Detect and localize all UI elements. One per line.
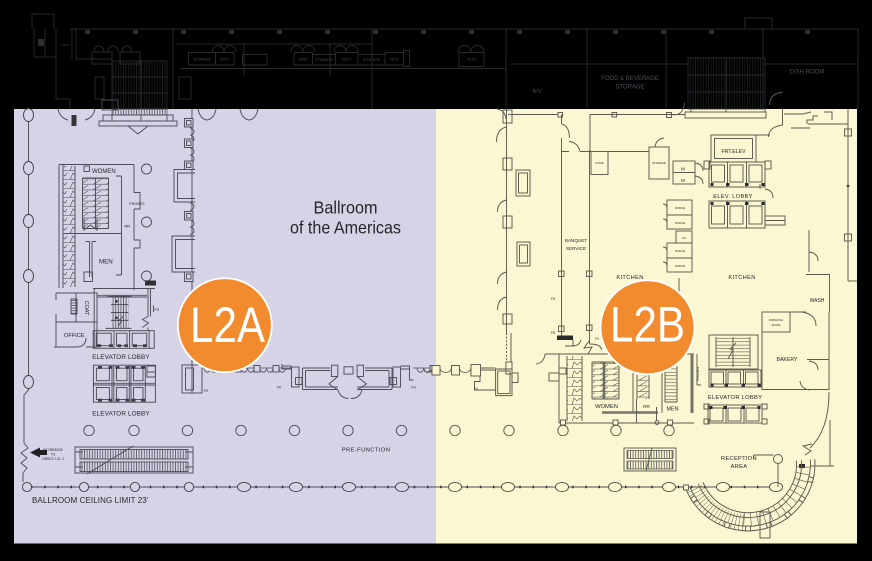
svg-text:WOMEN: WOMEN	[595, 404, 618, 410]
svg-text:KITCHEN: KITCHEN	[728, 275, 755, 281]
svg-text:AREA: AREA	[731, 464, 748, 470]
svg-text:STORAGE: STORAGE	[615, 85, 644, 91]
svg-text:SERVICE: SERVICE	[566, 246, 586, 251]
svg-text:RECEPTION: RECEPTION	[721, 456, 757, 462]
svg-text:L2A: L2A	[190, 297, 266, 353]
svg-text:FH: FH	[155, 308, 160, 312]
svg-text:OFFICE: OFFICE	[675, 264, 685, 268]
svg-text:BAKERY: BAKERY	[777, 357, 798, 363]
svg-text:FOOD & BEVERAGE: FOOD & BEVERAGE	[601, 76, 659, 82]
svg-text:COAT: COAT	[83, 301, 89, 316]
svg-text:ROOM: ROOM	[772, 323, 781, 327]
svg-text:BANQUET: BANQUET	[565, 238, 587, 243]
svg-text:FRT.ELEV: FRT.ELEV	[721, 149, 746, 155]
svg-text:STORAGE: STORAGE	[315, 58, 333, 62]
svg-text:FH: FH	[277, 386, 282, 390]
svg-text:FH: FH	[551, 297, 556, 301]
svg-text:VEST: VEST	[342, 58, 352, 62]
svg-text:OFFICE: OFFICE	[64, 333, 85, 339]
svg-text:FB: FB	[551, 331, 555, 335]
svg-text:ELEVATOR LOBBY: ELEVATOR LOBBY	[708, 395, 762, 401]
svg-text:MEN: MEN	[99, 259, 113, 266]
svg-text:PHONES: PHONES	[129, 202, 145, 206]
svg-text:FH: FH	[412, 386, 417, 390]
svg-text:A/V: A/V	[532, 89, 541, 95]
svg-text:STORAGE: STORAGE	[193, 58, 211, 62]
svg-text:of the Americas: of the Americas	[290, 218, 401, 238]
svg-text:OFFICE: OFFICE	[675, 221, 685, 225]
svg-text:OFFICE: OFFICE	[675, 206, 685, 210]
svg-text:L2B: L2B	[610, 297, 685, 353]
svg-text:M: M	[681, 178, 685, 183]
svg-text:ELEVATOR LOBBY: ELEVATOR LOBBY	[92, 354, 150, 361]
svg-text:RR: RR	[643, 404, 650, 409]
svg-text:STOR: STOR	[595, 161, 604, 165]
svg-text:STORAGE: STORAGE	[652, 161, 666, 165]
svg-text:FINISHING: FINISHING	[769, 318, 783, 322]
svg-text:Ballroom: Ballroom	[314, 198, 378, 218]
svg-text:GRBCC LVL 2: GRBCC LVL 2	[42, 457, 64, 461]
svg-text:ELEV. LOBBY: ELEV. LOBBY	[713, 194, 752, 200]
svg-text:BALLROOM CEILING LIMIT 23': BALLROOM CEILING LIMIT 23'	[32, 496, 149, 505]
svg-text:RR: RR	[125, 225, 131, 229]
svg-text:MEN: MEN	[667, 407, 679, 413]
svg-text:VEST: VEST	[299, 58, 309, 62]
svg-text:DISH ROOM: DISH ROOM	[790, 70, 825, 76]
svg-text:SKYBRIDGE: SKYBRIDGE	[43, 448, 64, 452]
svg-text:VEST: VEST	[390, 58, 400, 62]
svg-text:VEST: VEST	[467, 58, 477, 62]
svg-text:TO: TO	[51, 453, 56, 457]
svg-text:PRE-FUNCTION: PRE-FUNCTION	[342, 448, 391, 454]
svg-text:WASH: WASH	[810, 298, 825, 304]
svg-text:A/V: A/V	[682, 236, 687, 240]
svg-text:ELEVATOR LOBBY: ELEVATOR LOBBY	[92, 411, 150, 418]
svg-text:VEST: VEST	[220, 58, 230, 62]
svg-text:OFFICE: OFFICE	[675, 249, 685, 253]
svg-text:WOMEN: WOMEN	[92, 169, 116, 175]
